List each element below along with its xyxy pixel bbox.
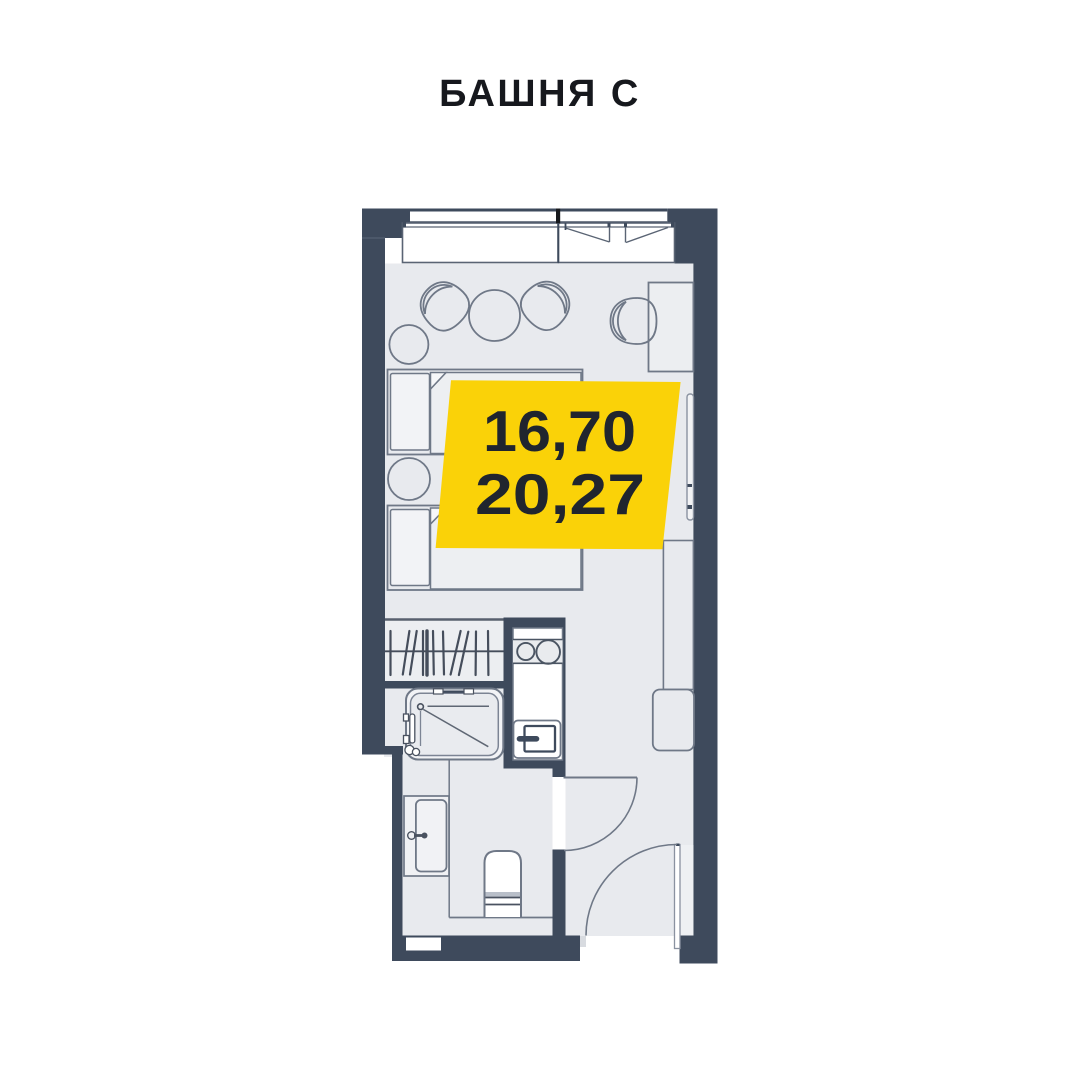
svg-text:БАШНЯ С: БАШНЯ С [439, 73, 641, 115]
svg-text:16,70: 16,70 [483, 400, 636, 464]
svg-text:20,27: 20,27 [475, 463, 645, 527]
